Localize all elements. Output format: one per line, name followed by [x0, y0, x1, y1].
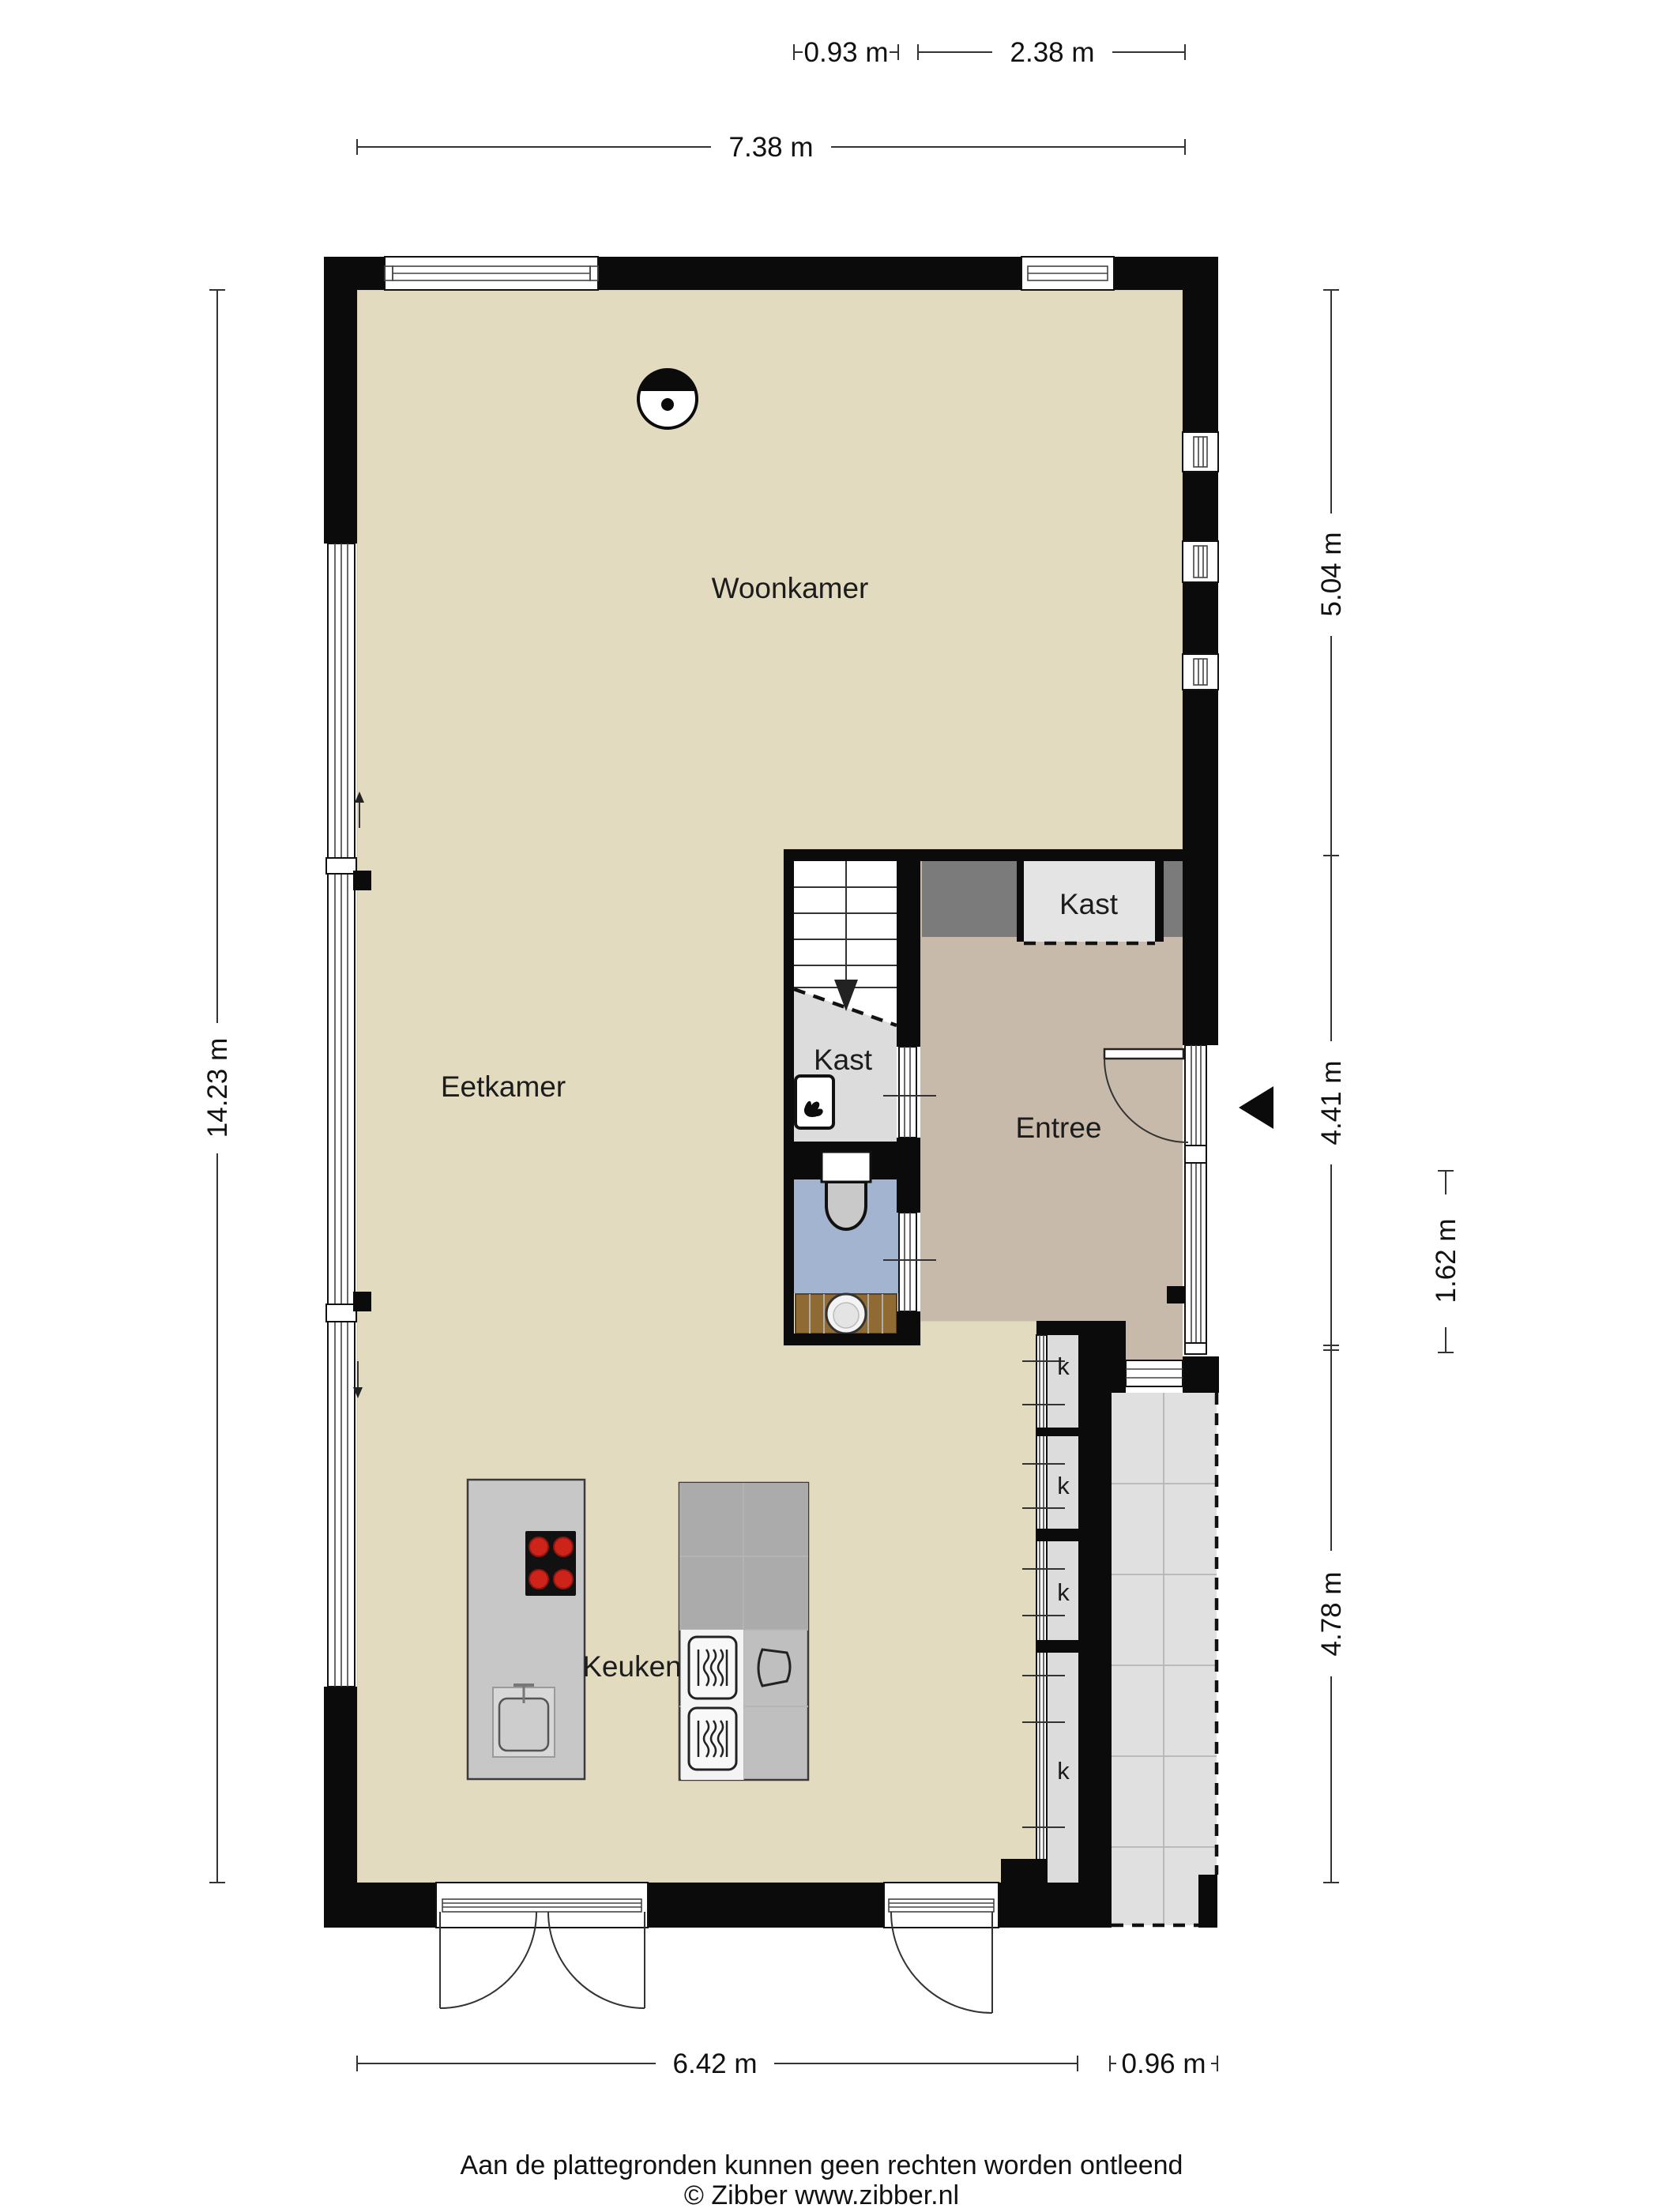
dim-left-1423: 14.23 m: [202, 290, 233, 1883]
entree-post: [1167, 1286, 1185, 1303]
svg-text:14.23 m: 14.23 m: [202, 1038, 233, 1138]
dim-bottom-096: 0.96 m: [1110, 2048, 1217, 2079]
label-woonkamer: Woonkamer: [712, 572, 869, 604]
svg-text:5.04 m: 5.04 m: [1316, 532, 1347, 617]
passage-window: [1126, 1360, 1183, 1386]
ceiling-light-icon: [638, 369, 697, 428]
k-closet-front-panel: [1036, 1335, 1047, 1883]
footer: Aan de plattegronden kunnen geen rechten…: [461, 2150, 1183, 2210]
water-heater: [796, 1076, 833, 1128]
right-window-2: [1183, 541, 1218, 582]
svg-text:4.41 m: 4.41 m: [1316, 1061, 1347, 1145]
vanity: [796, 1294, 897, 1334]
svg-text:1.62 m: 1.62 m: [1431, 1219, 1461, 1303]
toilet-cistern-over: [822, 1152, 871, 1182]
label-eetkamer: Eetkamer: [441, 1070, 566, 1103]
top-window-right: [1021, 257, 1114, 290]
dim-right-441: 4.41 m: [1316, 856, 1347, 1350]
label-entree: Entree: [1015, 1112, 1101, 1144]
dim-right-162: 1.62 m: [1431, 1171, 1461, 1352]
front-door-leaf: [1104, 1049, 1183, 1059]
footer-disclaimer: Aan de plattegronden kunnen geen rechten…: [461, 2150, 1183, 2180]
k-label-2: k: [1057, 1472, 1070, 1499]
facade-post-1: [353, 871, 371, 890]
kast-divider-right: [1155, 861, 1164, 942]
svg-text:0.96 m: 0.96 m: [1122, 2048, 1206, 2079]
k-label-3: k: [1057, 1578, 1070, 1606]
k-label-4: k: [1057, 1757, 1070, 1785]
entrance-arrow-icon: [1239, 1086, 1273, 1129]
kitchen-island: [468, 1480, 585, 1779]
svg-text:2.38 m: 2.38 m: [1010, 37, 1095, 68]
dim-right-478: 4.78 m: [1316, 1345, 1347, 1883]
label-keuken: Keuken: [582, 1650, 682, 1683]
svg-text:7.38 m: 7.38 m: [729, 132, 814, 163]
k-label-1: k: [1057, 1352, 1070, 1380]
dim-top-738: 7.38 m: [357, 132, 1185, 163]
svg-text:4.78 m: 4.78 m: [1316, 1572, 1347, 1657]
dim-top-093: 0.93 m: [794, 37, 898, 68]
oven-icon: [689, 1637, 736, 1698]
floorplan-canvas: k k k k: [0, 0, 1659, 2212]
dishwasher-icon: [689, 1708, 736, 1770]
svg-text:6.42 m: 6.42 m: [673, 2048, 758, 2079]
entree-kast-strip: [922, 861, 1183, 943]
kitchen-counter: [679, 1483, 808, 1780]
dim-bottom-642: 6.42 m: [357, 2048, 1078, 2079]
footer-copyright: © Zibber www.zibber.nl: [684, 2180, 959, 2210]
label-kast-top: Kast: [1059, 888, 1119, 920]
kitchen-side-door: [884, 1883, 999, 2013]
svg-text:0.93 m: 0.93 m: [804, 37, 889, 68]
kast-divider-left: [1017, 861, 1024, 942]
k-closet-floor: [1047, 1335, 1078, 1883]
top-window-left: [385, 257, 598, 290]
wardrobe-cabinet-left: [922, 861, 1017, 937]
facade-mullion-1: [326, 858, 356, 874]
facade-mullion-2: [326, 1304, 356, 1322]
dim-right-504: 5.04 m: [1316, 290, 1347, 856]
corner-post: [1198, 1875, 1217, 1928]
garden-double-door: [436, 1883, 648, 2008]
island-sink: [493, 1684, 555, 1757]
right-window-3: [1183, 654, 1218, 690]
facade-post-2: [353, 1292, 371, 1311]
toilet-bowl: [826, 1182, 866, 1229]
outdoor-covered-area: [1112, 1335, 1219, 1928]
label-kast-stairs: Kast: [814, 1044, 873, 1076]
right-window-1: [1183, 432, 1218, 472]
wardrobe-cabinet-right: [1164, 861, 1183, 937]
cooktop: [525, 1531, 576, 1596]
dim-top-238: 2.38 m: [918, 37, 1185, 68]
